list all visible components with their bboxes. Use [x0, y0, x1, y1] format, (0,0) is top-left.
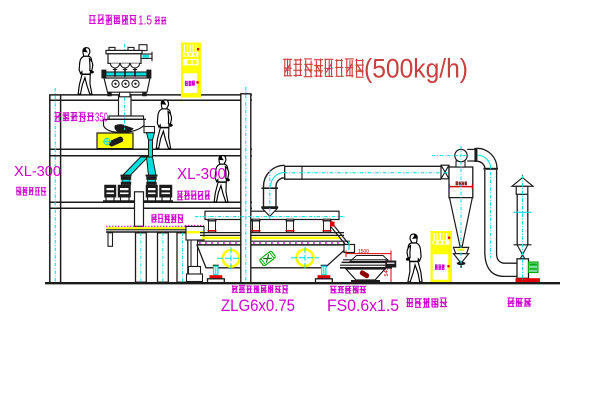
- svg-text:1.5: 1.5: [138, 13, 152, 28]
- svg-text:FS0.6x1.5: FS0.6x1.5: [327, 297, 399, 315]
- svg-text:ZLG6x0.75: ZLG6x0.75: [221, 297, 295, 315]
- svg-text:XL-300: XL-300: [14, 163, 61, 180]
- svg-text:XL-300: XL-300: [177, 166, 226, 183]
- svg-text:1500: 1500: [358, 249, 369, 255]
- svg-text:(500kg/h): (500kg/h): [364, 54, 468, 84]
- svg-text:350: 350: [95, 110, 108, 125]
